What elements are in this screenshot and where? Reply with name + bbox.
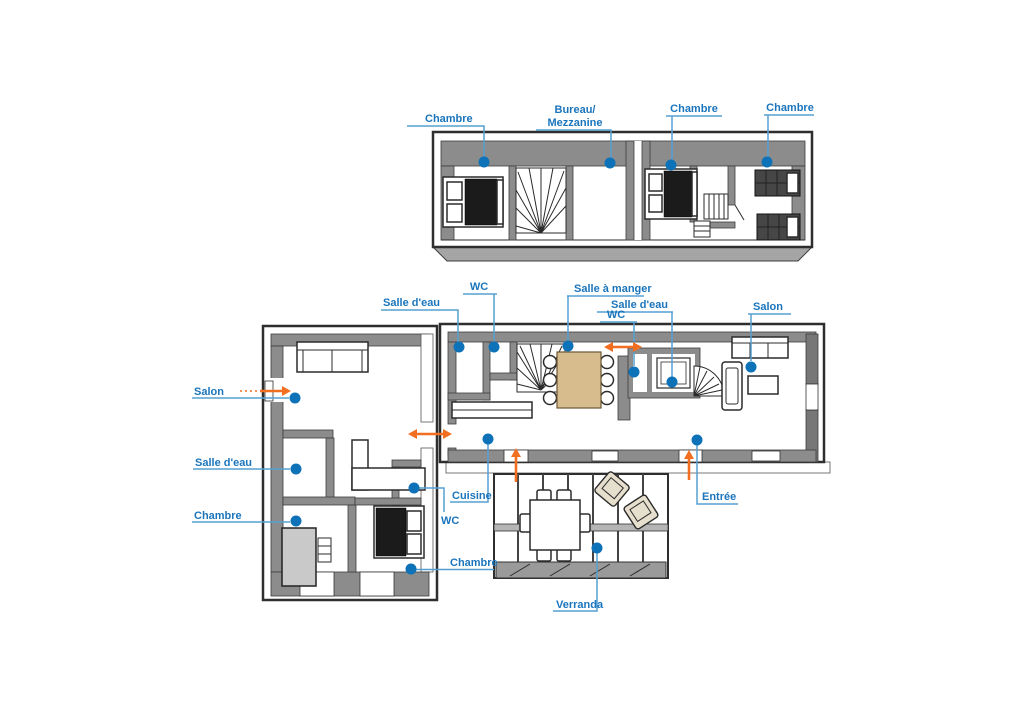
label-chambre-upper-left: Chambre	[425, 113, 473, 125]
label-salon-left: Salon	[194, 386, 224, 398]
kitchen-counter-icon	[452, 402, 532, 418]
marker-salle-deau-top	[454, 342, 465, 353]
bed-icon	[645, 169, 697, 219]
label-salle-deau-left: Salle d'eau	[195, 457, 252, 469]
marker-salon-right	[746, 362, 757, 373]
label-wc-left: WC	[441, 515, 459, 527]
armchair-icon	[722, 362, 742, 410]
label-mezzanine: Mezzanine	[547, 117, 602, 129]
marker-wc-right	[629, 367, 640, 378]
marker-wc-left	[409, 483, 420, 494]
label-salle-a-manger: Salle à manger	[574, 283, 652, 295]
marker-entree	[692, 435, 703, 446]
floor-plan-drawing: Chambre Bureau/ Mezzanine Chambre Chambr…	[0, 0, 1030, 728]
coffee-table-icon	[748, 376, 778, 394]
label-entree: Entrée	[702, 491, 736, 503]
marker-chambre-bottom	[406, 564, 417, 575]
veranda	[494, 471, 668, 578]
wall	[509, 166, 516, 240]
marker-salon-left	[290, 393, 301, 404]
label-salle-deau-top: Salle d'eau	[383, 297, 440, 309]
label-wc-right: WC	[607, 309, 625, 321]
marker-salle-deau-right	[667, 377, 678, 388]
upper-floor-plan	[433, 132, 812, 261]
wardrobe-icon	[282, 528, 316, 586]
marker-chambre-upper-right	[762, 157, 773, 168]
label-chambre-bottom: Chambre	[450, 557, 498, 569]
marker-chambre-upper-mid	[666, 160, 677, 171]
label-chambre-upper-right: Chambre	[766, 102, 814, 114]
marker-chambre-left	[291, 516, 302, 527]
label-chambre-left: Chambre	[194, 510, 242, 522]
label-wc-top: WC	[470, 281, 488, 293]
label-salon-right: Salon	[753, 301, 783, 313]
stairs-icon	[516, 168, 566, 233]
marker-verranda	[592, 543, 603, 554]
dresser-icon	[318, 538, 331, 562]
marker-salle-deau-left	[291, 464, 302, 475]
marker-chambre-upper-left	[479, 157, 490, 168]
marker-bureau-mezzanine	[605, 158, 616, 169]
bed-icon	[443, 177, 503, 227]
marker-cuisine	[483, 434, 494, 445]
marker-salle-a-manger	[563, 341, 574, 352]
sofa-icon	[297, 342, 368, 372]
wall	[566, 166, 573, 240]
label-chambre-upper-mid: Chambre	[670, 103, 718, 115]
label-verranda: Verranda	[556, 599, 604, 611]
label-cuisine: Cuisine	[452, 490, 492, 502]
ground-floor-left-wing	[263, 326, 437, 600]
sofa-icon	[732, 337, 788, 358]
label-bureau: Bureau/	[555, 104, 596, 116]
veranda-table-icon	[520, 490, 590, 561]
dining-table-icon	[544, 352, 614, 408]
floor-plan-page: Chambre Bureau/ Mezzanine Chambre Chambr…	[0, 0, 1030, 728]
wall	[728, 166, 735, 205]
bed-icon	[374, 506, 424, 558]
marker-wc-top	[489, 342, 500, 353]
